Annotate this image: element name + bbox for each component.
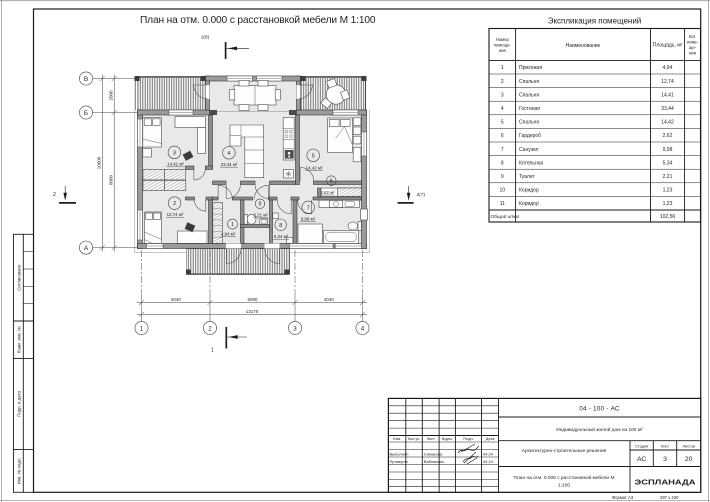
svg-text:1(6): 1(6) xyxy=(201,35,210,41)
svg-text:2: 2 xyxy=(53,192,56,198)
svg-text:ния: ния xyxy=(499,48,507,53)
svg-text:Стадия: Стадия xyxy=(635,444,648,449)
svg-text:04.24: 04.24 xyxy=(483,459,494,464)
svg-text:5: 5 xyxy=(312,153,315,159)
svg-text:1:100: 1:100 xyxy=(558,483,570,489)
svg-text:Индивидуальный жилой дом на 10: Индивидуальный жилой дом на 100 м² xyxy=(556,426,643,433)
svg-text:6: 6 xyxy=(501,133,504,139)
svg-text:2,21 м²: 2,21 м² xyxy=(254,213,269,218)
svg-text:В: В xyxy=(84,76,88,83)
svg-text:2,21: 2,21 xyxy=(663,174,673,180)
svg-text:1,23: 1,23 xyxy=(663,188,673,194)
svg-text:Кол.уч.: Кол.уч. xyxy=(408,436,421,441)
svg-text:3: 3 xyxy=(173,150,176,156)
svg-text:3: 3 xyxy=(293,325,297,332)
svg-text:4,94 м²: 4,94 м² xyxy=(221,231,236,236)
svg-text:1: 1 xyxy=(231,222,234,228)
svg-text:102,56: 102,56 xyxy=(660,214,676,220)
svg-text:поме-: поме- xyxy=(687,40,699,45)
svg-text:Согласовано: Согласовано xyxy=(16,264,21,291)
svg-text:Спальня: Спальня xyxy=(519,79,539,85)
svg-text:Инв. № подл.: Инв. № подл. xyxy=(16,457,21,484)
svg-text:5090: 5090 xyxy=(247,297,258,302)
svg-text:1,23: 1,23 xyxy=(663,201,673,207)
svg-text:9,98: 9,98 xyxy=(663,147,673,153)
svg-text:7: 7 xyxy=(307,205,310,211)
svg-text:АС: АС xyxy=(637,456,646,463)
svg-text:№док.: №док. xyxy=(441,436,452,441)
svg-text:4: 4 xyxy=(227,151,230,157)
svg-text:1: 1 xyxy=(140,325,144,332)
svg-text:Листов: Листов xyxy=(682,444,695,449)
svg-text:ЭСПЛАНАДА: ЭСПЛАНАДА xyxy=(635,477,696,486)
svg-text:297 х 420: 297 х 420 xyxy=(660,495,679,500)
svg-text:Подп.: Подп. xyxy=(463,436,473,441)
svg-text:14,41: 14,41 xyxy=(661,92,674,98)
svg-text:20: 20 xyxy=(685,456,693,463)
svg-text:8: 8 xyxy=(501,160,504,166)
svg-text:4040: 4040 xyxy=(171,297,182,302)
svg-text:8000: 8000 xyxy=(108,174,113,185)
svg-text:Общий итог: Общий итог xyxy=(491,213,520,220)
svg-text:7: 7 xyxy=(501,147,504,153)
svg-text:Изм.: Изм. xyxy=(393,436,401,441)
svg-text:Котельная: Котельная xyxy=(519,160,543,166)
svg-text:10: 10 xyxy=(500,188,506,194)
svg-text:План на отм. 0.000 с расстанов: План на отм. 0.000 с расстановкой мебели… xyxy=(514,474,615,481)
svg-text:Лист: Лист xyxy=(426,436,435,441)
svg-text:04.24: 04.24 xyxy=(483,452,494,457)
svg-text:Туалет: Туалет xyxy=(519,174,536,180)
svg-text:33,44: 33,44 xyxy=(661,106,674,112)
svg-text:9: 9 xyxy=(259,202,262,208)
svg-text:10000: 10000 xyxy=(97,156,102,169)
svg-text:12,74 м²: 12,74 м² xyxy=(167,212,184,217)
svg-text:9,98 м²: 9,98 м² xyxy=(301,216,316,221)
svg-text:4: 4 xyxy=(501,106,504,112)
svg-text:11: 11 xyxy=(500,201,505,207)
svg-text:9: 9 xyxy=(501,174,504,180)
svg-text:4040: 4040 xyxy=(324,297,335,302)
svg-text:Спальня: Спальня xyxy=(519,120,539,126)
svg-text:Гостиная: Гостиная xyxy=(519,106,540,112)
svg-text:5,34 м²: 5,34 м² xyxy=(274,234,289,239)
svg-text:2,62 м²: 2,62 м² xyxy=(320,190,335,195)
svg-text:Архитектурно-строительные реше: Архитектурно-строительные решения xyxy=(522,448,607,454)
svg-text:Проверил: Проверил xyxy=(390,459,409,464)
svg-text:Спальня: Спальня xyxy=(519,92,539,98)
svg-text:Прихожая: Прихожая xyxy=(519,65,542,71)
svg-text:Подп. и дата: Подп. и дата xyxy=(16,391,21,417)
svg-text:помеще-: помеще- xyxy=(494,43,512,48)
svg-text:Номер: Номер xyxy=(496,37,510,42)
svg-text:ще-: ще- xyxy=(689,45,697,50)
svg-text:33,44 м²: 33,44 м² xyxy=(221,162,238,167)
svg-text:Симакова: Симакова xyxy=(424,452,443,457)
svg-text:3: 3 xyxy=(501,92,504,98)
svg-text:2: 2 xyxy=(173,201,176,207)
svg-text:4: 4 xyxy=(361,325,365,332)
svg-text:План на отм. 0.000 с расстанов: План на отм. 0.000 с расстановкой мебели… xyxy=(140,14,376,26)
svg-text:2000: 2000 xyxy=(108,90,113,101)
svg-text:Б: Б xyxy=(84,110,88,117)
svg-text:8: 8 xyxy=(279,223,282,229)
svg-text:Формат А3: Формат А3 xyxy=(612,495,634,500)
svg-text:Дата: Дата xyxy=(486,436,495,441)
svg-text:6: 6 xyxy=(330,179,333,185)
svg-text:14,42: 14,42 xyxy=(661,120,674,126)
svg-text:Взам. инв. №: Взам. инв. № xyxy=(16,326,21,353)
svg-text:А: А xyxy=(84,245,89,252)
svg-text:04 - 100 - АС: 04 - 100 - АС xyxy=(579,406,620,413)
svg-text:3: 3 xyxy=(663,456,667,463)
svg-text:14,42 м²: 14,42 м² xyxy=(306,165,323,170)
svg-text:2: 2 xyxy=(208,325,212,332)
svg-text:Кат.: Кат. xyxy=(689,34,696,39)
svg-text:Экспликация помещений: Экспликация помещений xyxy=(548,17,642,26)
svg-text:2(7): 2(7) xyxy=(417,192,426,198)
svg-text:14,41 м²: 14,41 м² xyxy=(167,162,184,167)
svg-text:5,34: 5,34 xyxy=(663,160,673,166)
svg-text:4,94: 4,94 xyxy=(663,65,673,71)
svg-text:Коридор: Коридор xyxy=(519,188,539,194)
svg-text:Вабликова: Вабликова xyxy=(424,459,445,464)
svg-text:Коридор: Коридор xyxy=(519,201,539,207)
svg-text:1: 1 xyxy=(211,348,214,354)
svg-text:Наименование: Наименование xyxy=(566,43,601,49)
svg-text:ния: ния xyxy=(689,51,697,56)
svg-text:2: 2 xyxy=(501,79,504,85)
svg-text:13170: 13170 xyxy=(246,309,259,314)
svg-text:Выполнил: Выполнил xyxy=(390,452,410,457)
svg-text:Санузел: Санузел xyxy=(519,147,539,153)
svg-text:1: 1 xyxy=(501,65,504,71)
svg-text:Лист: Лист xyxy=(661,444,670,449)
svg-text:5: 5 xyxy=(501,120,504,126)
svg-text:Площадь, м²: Площадь, м² xyxy=(653,43,683,49)
svg-text:2,62: 2,62 xyxy=(663,133,673,139)
svg-text:12,74: 12,74 xyxy=(661,79,674,85)
svg-text:Гардероб: Гардероб xyxy=(519,133,541,139)
